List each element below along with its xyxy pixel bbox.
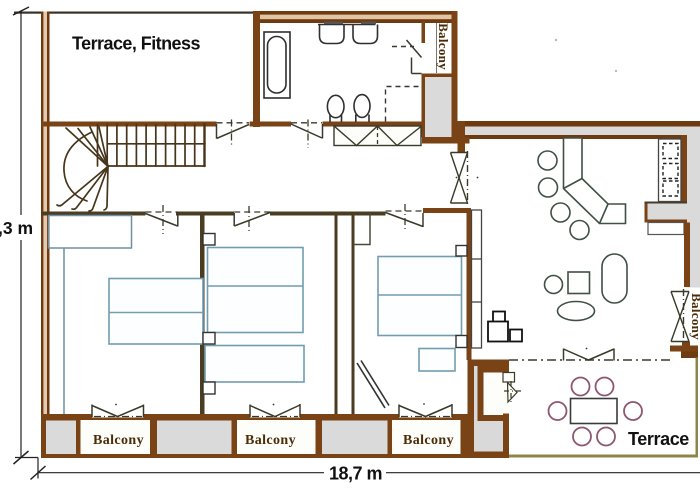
svg-text:Balcony: Balcony bbox=[436, 23, 451, 70]
svg-text:18,7 m: 18,7 m bbox=[329, 464, 382, 484]
svg-text:Balcony: Balcony bbox=[689, 293, 700, 340]
svg-text:Balcony: Balcony bbox=[93, 433, 144, 448]
svg-text:,3 m: ,3 m bbox=[0, 218, 33, 238]
svg-text:Balcony: Balcony bbox=[403, 433, 454, 448]
svg-text:Balcony: Balcony bbox=[245, 433, 296, 448]
svg-text:Terrace, Fitness: Terrace, Fitness bbox=[72, 34, 200, 54]
svg-text:Terrace: Terrace bbox=[628, 429, 689, 449]
